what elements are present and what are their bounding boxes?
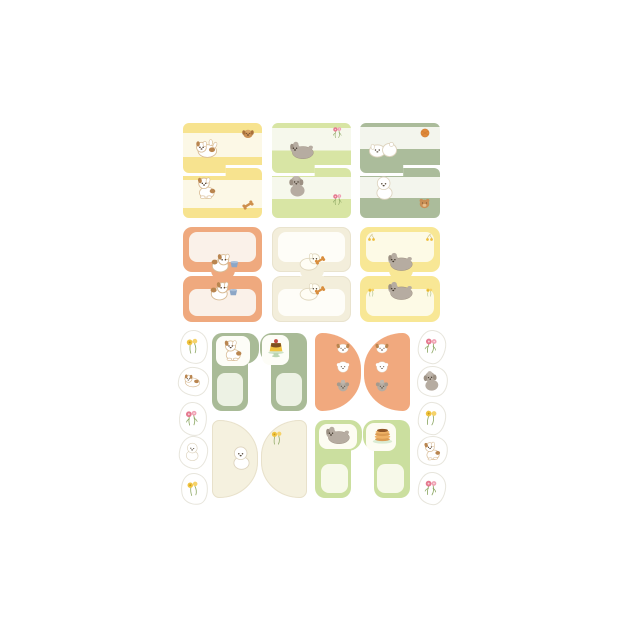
memo-pad-yellow-frame [360,227,440,322]
sticker-yellow-flowers [178,329,209,366]
memo-sheet [0,0,624,625]
sticker-lying-puppy [177,366,210,398]
poodle-face-icon [373,377,391,395]
memo-card-right [364,333,410,411]
yellow-flowers-icon [424,283,435,294]
sitting-bichon-icon [181,440,204,463]
memo-card-bottom [360,168,440,218]
writing-area [377,464,404,493]
sitting-poodle-icon [285,173,310,198]
lying-poodle-icon [386,247,415,276]
pudding-icon [263,335,289,361]
lying-puppy-icon [181,369,204,392]
pink-flowers-icon [330,192,345,207]
memo-card-top [360,123,440,173]
sticker-pink-flowers [416,328,448,365]
pink-flowers-icon [330,125,345,140]
sticker-brown-puppy [416,434,450,467]
yellow-cherries-icon [423,230,436,243]
memo-card-right [363,420,410,498]
yellow-flowers-icon [182,335,204,357]
lying-poodle-icon [324,421,352,449]
puppy-with-bowl-icon [208,276,238,306]
memo-card-bottom [183,276,262,322]
sitting-puppy-icon [220,337,245,362]
memo-card-bottom [272,276,351,322]
memo-card-right [260,333,307,411]
yellow-flowers-icon [366,283,377,294]
memo-card-bottom [360,276,440,322]
sitting-puppy-icon [419,438,443,462]
memo-card-bottom [183,168,262,218]
writing-area [217,373,243,406]
lying-poodle-icon [386,276,415,305]
memo-pad-yellow-stripe [183,123,262,218]
memo-pad-orange-dome [315,333,410,411]
bichon-face-icon [373,358,391,376]
poodle-face-icon [334,377,352,395]
memo-pad-cream-frame [272,227,351,322]
dog-with-bone-icon [297,277,326,306]
pink-flowers-icon [420,477,442,499]
memo-pad-cream-dome [212,420,307,498]
memo-pad-green-stripe [272,123,351,218]
sticker-pink-flowers [417,471,448,506]
memo-pad-sage-arch [212,333,307,411]
sitting-poodle-icon [419,368,444,393]
sticker-white-dog [177,435,209,471]
memo-card-left [315,420,362,498]
writing-area [321,464,348,493]
yellow-cherries-icon [365,230,378,243]
pink-flowers-icon [181,407,202,428]
memo-card-top [183,123,262,173]
sitting-bichon-icon [371,174,398,201]
memo-card-left [212,333,259,411]
pancakes-icon [369,422,396,449]
memo-card-left [212,420,258,498]
bichon-face-icon [334,358,352,376]
playing-white-dogs-icon [368,135,398,165]
memo-pad-sage-stripe [360,123,440,218]
sticker-gray-poodle [416,365,450,399]
puppy-face-icon [373,339,391,357]
sticker-pink-flowers [178,401,208,437]
puppy-with-bowl-icon [209,248,239,278]
dog-with-bone-icon [297,247,326,276]
sitting-puppy-icon [193,174,219,200]
sticker-yellow-flowers [416,401,447,437]
yellow-flowers-icon [268,429,286,447]
bone-icon [240,197,256,213]
memo-card-right [261,420,307,498]
pink-flowers-icon [420,335,442,357]
memo-pad-green-arch [315,420,410,498]
sticker-yellow-flowers [179,471,210,506]
writing-area [276,373,302,406]
lying-poodle-icon [288,136,316,164]
memo-card-left [315,333,361,411]
yellow-flowers-icon [420,406,442,428]
memo-card-top [272,123,351,173]
orange-ball-icon [418,125,432,139]
tumbling-puppy-icon [193,135,220,162]
yellow-flowers-icon [183,477,204,498]
memo-card-bottom [272,168,351,218]
sitting-bichon-icon [228,444,255,471]
puppy-face-icon [334,339,352,357]
brown-dog-head-icon [240,125,256,141]
memo-pad-orange-frame [183,227,262,322]
teddy-bear-icon [416,195,433,212]
